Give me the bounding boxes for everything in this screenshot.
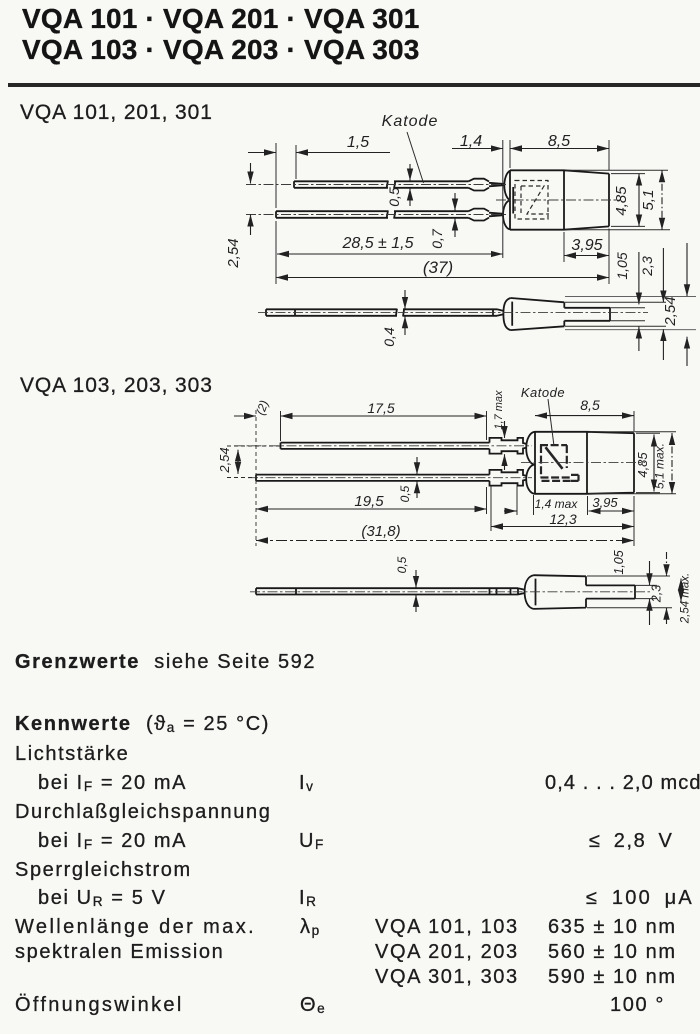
svg-text:2,54: 2,54 <box>662 296 679 326</box>
svg-text:1,7 max: 1,7 max <box>493 390 505 430</box>
svg-text:8,5: 8,5 <box>580 397 600 413</box>
svg-text:1,4: 1,4 <box>460 133 482 150</box>
svg-text:(31,8): (31,8) <box>361 523 400 540</box>
svg-text:1,05: 1,05 <box>614 252 630 279</box>
svg-text:8,5: 8,5 <box>548 133 570 150</box>
svg-text:0,5: 0,5 <box>398 485 412 502</box>
svg-text:5,1: 5,1 <box>640 190 657 211</box>
svg-text:(37): (37) <box>423 258 453 277</box>
svg-text:0,4: 0,4 <box>381 327 397 347</box>
svg-text:(2): (2) <box>253 398 271 417</box>
svg-text:1,5: 1,5 <box>347 134 369 151</box>
svg-text:28,5 ± 1,5: 28,5 ± 1,5 <box>341 235 413 252</box>
svg-text:4,85: 4,85 <box>635 452 650 478</box>
svg-text:2,3: 2,3 <box>639 256 655 277</box>
svg-text:3,95: 3,95 <box>571 237 602 254</box>
svg-text:19,5: 19,5 <box>354 493 384 510</box>
svg-text:1,4 max: 1,4 max <box>535 497 579 511</box>
svg-text:2,54: 2,54 <box>225 238 242 268</box>
svg-text:0,5: 0,5 <box>395 556 409 573</box>
svg-text:0,5: 0,5 <box>386 187 402 207</box>
svg-text:2,54: 2,54 <box>217 447 232 473</box>
svg-text:3,95: 3,95 <box>592 495 618 510</box>
svg-text:0,7: 0,7 <box>429 228 445 249</box>
svg-text:Katode: Katode <box>521 385 565 400</box>
svg-text:Katode: Katode <box>382 113 439 130</box>
svg-text:4,85: 4,85 <box>613 186 630 216</box>
svg-text:2,3: 2,3 <box>650 585 664 603</box>
svg-text:12,3: 12,3 <box>549 511 576 527</box>
svg-text:17,5: 17,5 <box>367 400 394 416</box>
svg-text:2,54 max.: 2,54 max. <box>680 573 692 625</box>
svg-text:5,1 max.: 5,1 max. <box>653 443 667 489</box>
svg-text:1,05: 1,05 <box>612 550 626 574</box>
